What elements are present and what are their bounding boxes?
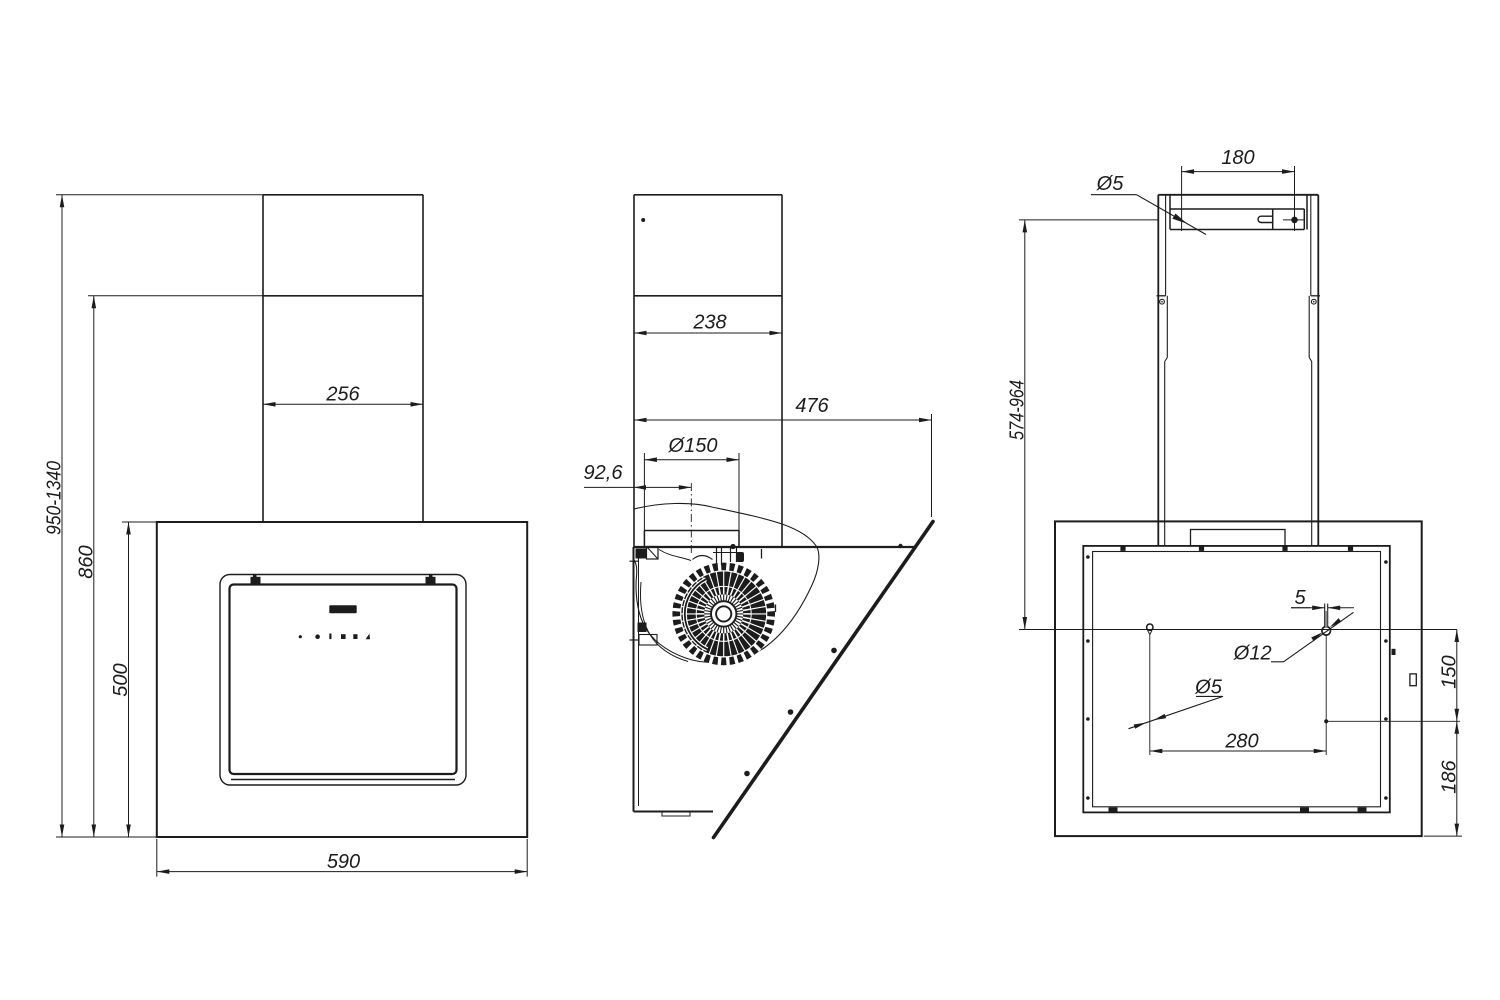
- svg-text:186: 186: [1438, 759, 1460, 793]
- svg-text:Ø5: Ø5: [1194, 677, 1223, 699]
- svg-text:950-1340: 950-1340: [44, 461, 66, 535]
- svg-text:238: 238: [692, 312, 726, 334]
- svg-text:280: 280: [1224, 730, 1258, 752]
- svg-text:150: 150: [1438, 655, 1460, 688]
- svg-text:5: 5: [1294, 587, 1306, 609]
- svg-text:92,6: 92,6: [584, 462, 624, 484]
- svg-text:256: 256: [325, 384, 360, 406]
- svg-text:500: 500: [110, 663, 132, 696]
- svg-text:Ø5: Ø5: [1096, 173, 1125, 195]
- svg-text:Ø12: Ø12: [1233, 643, 1272, 665]
- svg-text:180: 180: [1221, 147, 1254, 169]
- svg-text:590: 590: [327, 851, 360, 873]
- svg-text:476: 476: [795, 395, 829, 417]
- svg-text:860: 860: [75, 545, 97, 578]
- svg-text:Ø150: Ø150: [668, 435, 718, 457]
- svg-text:574-964: 574-964: [1006, 380, 1028, 440]
